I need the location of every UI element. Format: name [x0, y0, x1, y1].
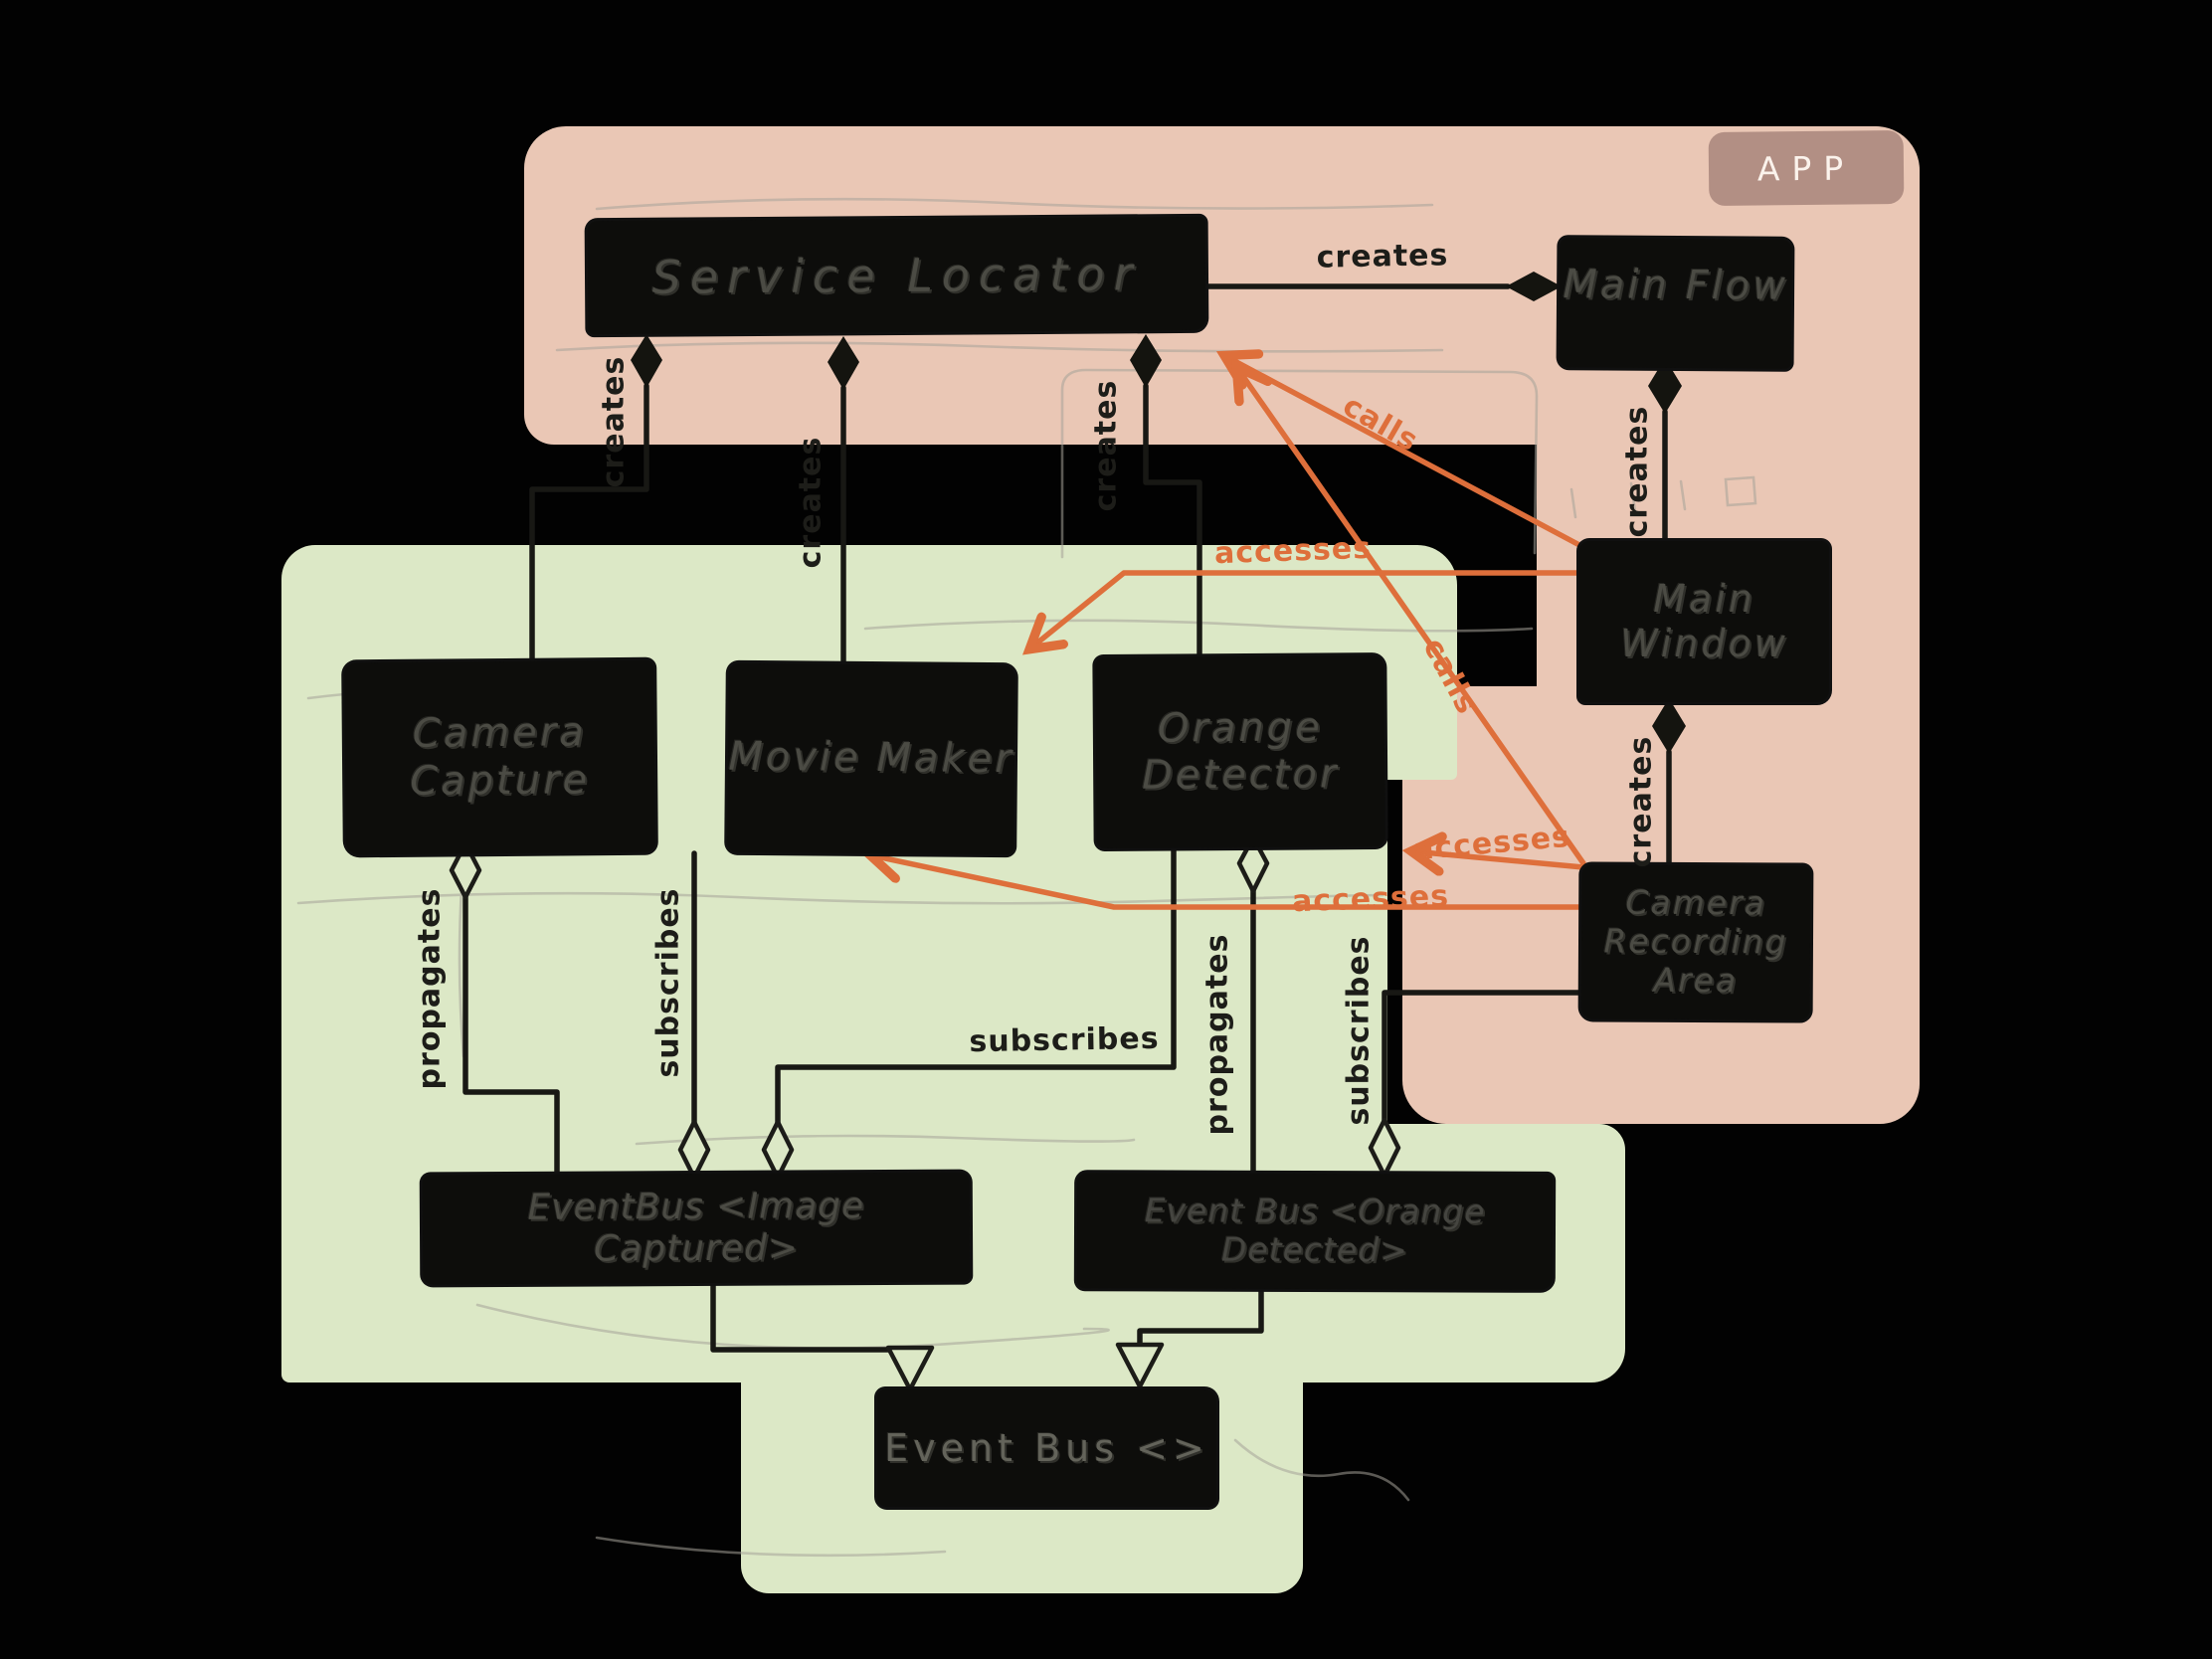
node-label: Main Window — [1579, 577, 1829, 666]
node-main-flow[interactable]: Main Flow — [1560, 238, 1792, 369]
triangle-genericbus-left — [888, 1348, 932, 1389]
node-event-bus-image-captured[interactable]: EventBus <Image Captured> — [423, 1173, 971, 1285]
edge-label-subscribes-moviemaker[interactable]: subscribes — [651, 887, 686, 1077]
node-event-bus-generic[interactable]: Event Bus <> — [877, 1389, 1216, 1507]
edge-orangebus-genericbus — [1140, 1289, 1261, 1346]
edge-label-propagates-cameracapture[interactable]: propagates — [413, 888, 448, 1090]
edge-label-propagates-orangedetector[interactable]: propagates — [1200, 934, 1235, 1136]
diamond-orangebus-top — [1371, 1120, 1398, 1176]
edge-cameracapture-imagebus — [465, 895, 557, 1174]
diamond-sl-left — [631, 334, 662, 388]
triangle-genericbus-right — [1118, 1345, 1162, 1386]
diamond-sl-right — [1130, 334, 1162, 388]
diagram-canvas: APP — [0, 0, 2212, 1659]
node-label: Service Locator — [651, 247, 1141, 304]
node-camera-recording-area[interactable]: Camera Recording Area — [1581, 864, 1811, 1019]
edge-label-creates-cra-mainwindow[interactable]: creates — [1624, 736, 1659, 868]
edge-mainwindow-accesses-moviemaker — [1030, 573, 1579, 648]
hollow-triangles — [888, 1345, 1162, 1389]
diamond-imagebus-top-right — [764, 1122, 792, 1178]
edge-label-creates-sl-mainflow[interactable]: creates — [1316, 238, 1448, 275]
edge-label-creates-sl-orangedetector[interactable]: creates — [1089, 380, 1124, 512]
node-label: Event Bus <> — [884, 1426, 1209, 1471]
edge-label-subscribes-orangedetector[interactable]: subscribes — [969, 1021, 1160, 1059]
edge-imagebus-genericbus — [713, 1281, 910, 1350]
edge-label-accesses-cra-moviemaker[interactable]: accesses — [1291, 879, 1449, 919]
diamond-imagebus-top-left — [680, 1122, 708, 1178]
node-label: Camera Recording Area — [1581, 883, 1811, 1001]
edge-sl-orangedetector — [1146, 386, 1199, 656]
node-label: Movie Maker — [728, 734, 1014, 784]
edge-label-accesses-mainwindow-moviemaker[interactable]: accesses — [1213, 531, 1372, 571]
edge-orangedetector-imagebus — [778, 847, 1174, 1124]
diamond-mainflow-left — [1506, 272, 1562, 301]
node-label: EventBus <Image Captured> — [423, 1185, 970, 1272]
node-event-bus-orange-detected[interactable]: Event Bus <Orange Detected> — [1077, 1173, 1553, 1290]
node-label: Camera Capture — [345, 709, 655, 806]
node-movie-maker[interactable]: Movie Maker — [727, 663, 1015, 855]
open-diamonds — [452, 837, 1398, 1178]
node-orange-detector[interactable]: Orange Detector — [1095, 655, 1384, 848]
node-label: Event Bus <Orange Detected> — [1077, 1192, 1553, 1271]
node-main-window[interactable]: Main Window — [1579, 541, 1829, 702]
node-label: Main Flow — [1563, 238, 1788, 310]
node-label: Orange Detector — [1096, 704, 1385, 800]
edge-label-subscribes-cra[interactable]: subscribes — [1342, 935, 1377, 1125]
pencil-sketch-lines — [298, 199, 1755, 1556]
edge-label-creates-mainwindow-mainflow[interactable]: creates — [1620, 406, 1655, 538]
node-camera-capture[interactable]: Camera Capture — [344, 660, 655, 855]
edge-label-creates-sl-moviemaker[interactable]: creates — [794, 437, 829, 569]
edge-cra-orangebus — [1384, 993, 1581, 1122]
node-service-locator[interactable]: Service Locator — [588, 217, 1206, 334]
edge-label-creates-sl-cameracapture[interactable]: creates — [597, 356, 632, 488]
